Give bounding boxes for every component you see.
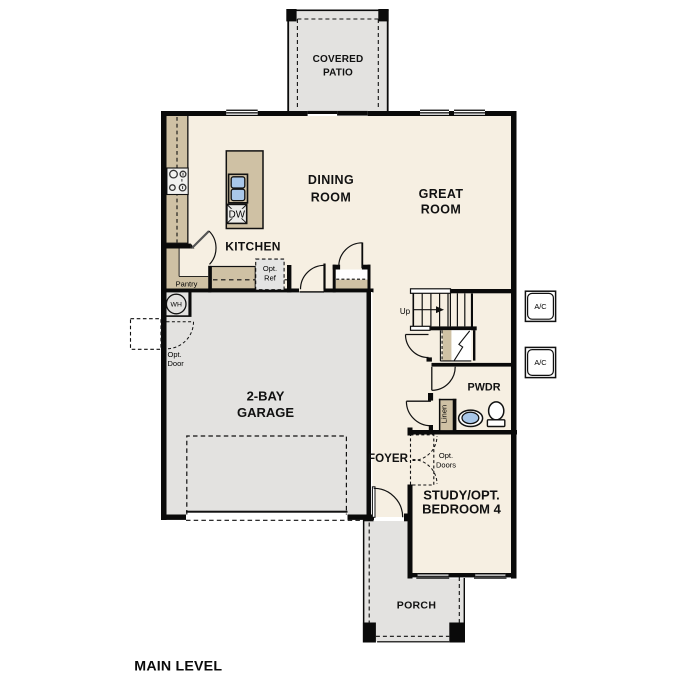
svg-text:BEDROOM 4: BEDROOM 4: [422, 502, 502, 517]
svg-text:COVERED: COVERED: [313, 54, 364, 65]
svg-text:A/C: A/C: [534, 302, 547, 311]
svg-text:Doors: Doors: [436, 461, 456, 470]
svg-text:FOYER: FOYER: [368, 452, 409, 465]
svg-text:PORCH: PORCH: [397, 599, 436, 611]
svg-text:A/C: A/C: [534, 358, 547, 367]
svg-text:PATIO: PATIO: [323, 68, 353, 79]
svg-text:Pantry: Pantry: [176, 279, 198, 288]
svg-text:Up: Up: [400, 307, 411, 316]
svg-text:Opt.: Opt.: [263, 264, 277, 273]
svg-text:Opt.: Opt.: [439, 451, 453, 460]
svg-text:MAIN LEVEL: MAIN LEVEL: [134, 659, 222, 675]
svg-text:ROOM: ROOM: [311, 191, 352, 205]
svg-text:GARAGE: GARAGE: [237, 405, 294, 420]
svg-text:DW: DW: [229, 210, 246, 221]
svg-text:Opt.: Opt.: [168, 350, 182, 359]
svg-text:DINING: DINING: [308, 173, 354, 187]
svg-text:Ref: Ref: [264, 274, 277, 283]
svg-text:WH: WH: [171, 302, 182, 309]
svg-text:GREAT: GREAT: [419, 187, 464, 201]
svg-text:ROOM: ROOM: [421, 202, 462, 216]
svg-text:KITCHEN: KITCHEN: [225, 240, 280, 254]
svg-text:PWDR: PWDR: [468, 381, 501, 393]
svg-text:2-BAY: 2-BAY: [247, 389, 285, 404]
svg-text:STUDY/OPT.: STUDY/OPT.: [423, 488, 500, 503]
svg-text:Linen: Linen: [440, 405, 449, 423]
svg-text:Door: Door: [168, 359, 185, 368]
